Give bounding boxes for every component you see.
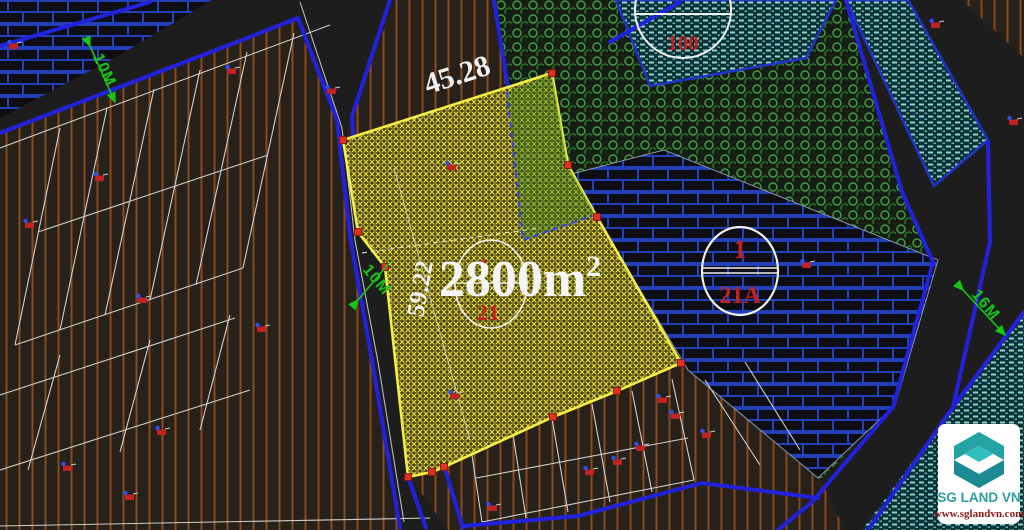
area-superscript: 2 (586, 250, 601, 283)
cad-canvas[interactable]: 100 1 21 1 21A 2800m2 45.28 59.22 10M 10… (0, 0, 1024, 530)
logo-watermark: SG LAND VN www.sglandvn.com (934, 424, 1024, 524)
block-right-bottom: 21A (719, 283, 761, 309)
vertex-handle[interactable] (550, 414, 557, 421)
area-value: 2800m (439, 251, 586, 308)
parcel-area-label: 2800m2 (439, 250, 601, 308)
logo-website-text: www.sglandvn.com (934, 508, 1024, 520)
vertex-handle[interactable] (441, 464, 448, 471)
vertex-handle[interactable] (565, 162, 572, 169)
logo-brand-text: SG LAND VN (937, 490, 1020, 505)
vertex-handle[interactable] (429, 469, 436, 476)
vertex-handle[interactable] (549, 70, 556, 77)
vertex-handle[interactable] (678, 360, 685, 367)
vertex-handle[interactable] (355, 229, 362, 236)
block-top-label: 100 (667, 31, 699, 55)
cad-map-stage: 100 1 21 1 21A 2800m2 45.28 59.22 10M 10… (0, 0, 1024, 530)
vertex-handle[interactable] (405, 474, 412, 481)
block-right-top: 1 (734, 235, 747, 264)
vertex-handle[interactable] (614, 388, 621, 395)
vertex-handle[interactable] (594, 214, 601, 221)
vertex-handle[interactable] (340, 137, 347, 144)
